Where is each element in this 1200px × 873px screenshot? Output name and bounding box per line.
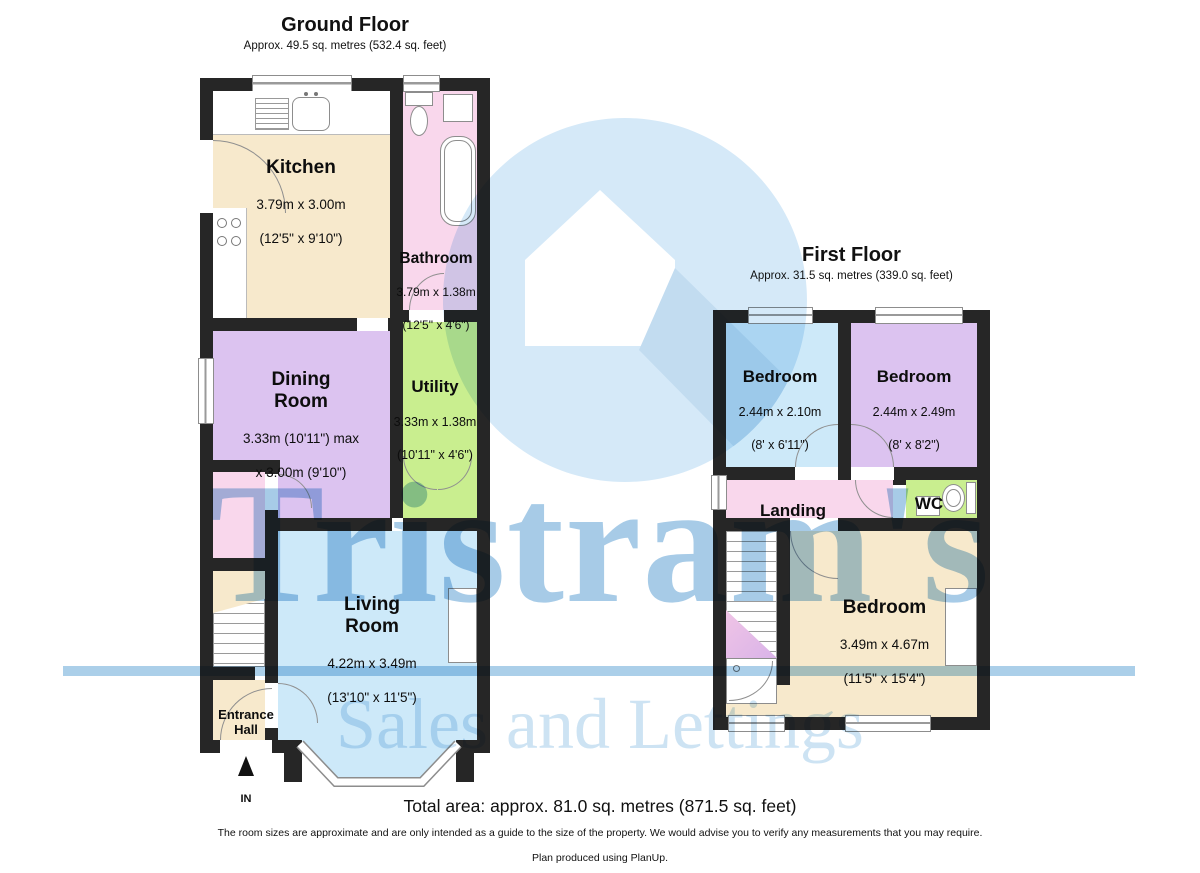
wall [392, 490, 403, 518]
utility-label: Utility 3.33m x 1.38m (10'11" x 4'6") [378, 358, 492, 481]
first-floor-title-block: First Floor Approx. 31.5 sq. metres (339… [713, 244, 990, 282]
basin-icon [443, 94, 473, 122]
wall [777, 531, 790, 685]
entry-arrow-icon [238, 756, 254, 776]
wall [278, 518, 392, 531]
bedroom1-window [748, 307, 813, 324]
utility-opening [392, 518, 403, 531]
tap-icon [304, 92, 308, 96]
ground-floor-title-block: Ground Floor Approx. 49.5 sq. metres (53… [200, 14, 490, 52]
shower-head-icon [733, 665, 740, 672]
wall [213, 318, 357, 331]
wc-door-opening [893, 485, 906, 518]
toilet-cistern-icon [405, 92, 433, 106]
wall [213, 558, 265, 571]
sink-icon [292, 97, 330, 131]
entrance-hall-label: Entrance Hall [204, 688, 288, 755]
bedroom2-label: Bedroom 2.44m x 2.49m (8' x 8'2") [851, 348, 977, 471]
wc-cistern-icon [966, 482, 976, 514]
landing-window [711, 475, 727, 510]
staircase [213, 571, 265, 667]
bedroom2-window [875, 307, 963, 324]
ground-floor-subtitle: Approx. 49.5 sq. metres (532.4 sq. feet) [200, 40, 490, 52]
wall [265, 510, 278, 683]
disclaimer-text: The room sizes are approximate and are o… [205, 826, 995, 840]
credit-text: Plan produced using PlanUp. [0, 852, 1200, 864]
first-floor-title: First Floor [713, 244, 990, 267]
kitchen-door-opening [200, 140, 213, 213]
total-area-text: Total area: approx. 81.0 sq. metres (871… [0, 796, 1200, 817]
landing-label: Landing [733, 482, 853, 539]
staircase-upper [726, 531, 777, 658]
bedroom3-window-right [845, 715, 931, 732]
wall [213, 667, 255, 680]
ground-floor-title: Ground Floor [200, 14, 490, 37]
kitchen-window [252, 75, 352, 92]
bathtub-icon [440, 136, 476, 226]
wall [403, 518, 477, 531]
bedroom3-label: Bedroom 3.49m x 4.67m (11'5" x 15'4") [807, 578, 962, 706]
bathtub-inner [444, 140, 472, 222]
dining-room-label: Dining Room 3.33m (10'11") max x 3.00m (… [221, 350, 381, 500]
bathroom-window [403, 75, 440, 92]
bathroom-label: Bathroom 3.79m x 1.38m (12'5" x 4'6") [376, 231, 496, 351]
wc-label: WC [909, 475, 949, 532]
living-room-label: Living Room 4.22m x 3.49m (13'10" x 11'5… [292, 575, 452, 725]
bedroom1-label: Bedroom 2.44m x 2.10m (8' x 6'11") [721, 348, 839, 471]
bay-window [294, 736, 464, 788]
wall [838, 518, 977, 531]
bedroom3-window-left [728, 715, 785, 732]
first-floor-subtitle: Approx. 31.5 sq. metres (339.0 sq. feet) [713, 270, 990, 282]
shower-tray [726, 658, 777, 704]
drainer-icon [255, 98, 289, 130]
toilet-icon [410, 106, 428, 136]
wall [838, 323, 851, 480]
sofa [448, 588, 477, 663]
wall [977, 310, 990, 730]
first-floor-plan: Bedroom 2.44m x 2.10m (8' x 6'11") Bedro… [713, 310, 990, 730]
ground-floor-plan: IN Kitchen 3.79m x 3.00m (12'5" x 9'10")… [200, 78, 490, 788]
kitchen-label: Kitchen 3.79m x 3.00m (12'5" x 9'10") [221, 138, 381, 266]
dining-window [198, 358, 214, 424]
tap-icon [314, 92, 318, 96]
